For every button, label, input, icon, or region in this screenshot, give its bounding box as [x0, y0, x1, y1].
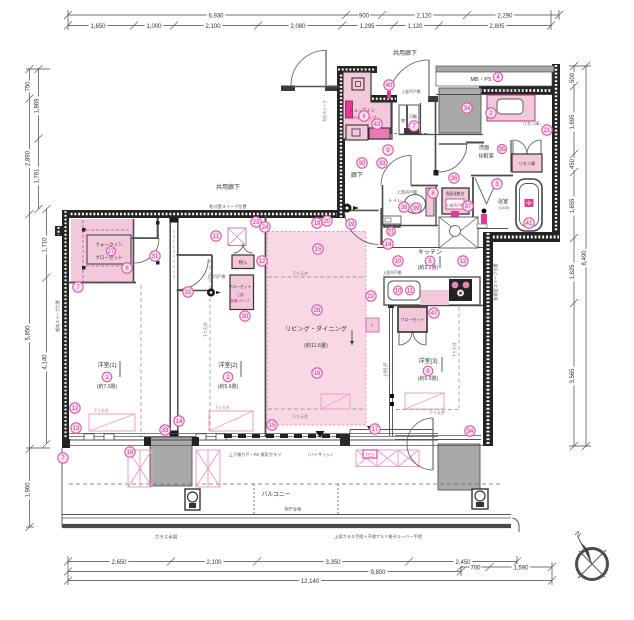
svg-text:12: 12 [72, 406, 79, 412]
svg-text:24: 24 [262, 225, 269, 231]
svg-text:19: 19 [348, 222, 355, 228]
svg-text:8,490: 8,490 [582, 250, 588, 266]
svg-text:41: 41 [526, 221, 533, 227]
svg-text:14: 14 [385, 242, 392, 248]
svg-text:物入: 物入 [239, 259, 248, 266]
svg-text:キッチン: キッチン [418, 249, 442, 256]
svg-text:(約7.0畳): (約7.0畳) [97, 383, 118, 390]
svg-text:上部: 上部 [236, 292, 244, 297]
svg-text:(約5.6畳): (約5.6畳) [218, 383, 239, 390]
svg-text:2,100: 2,100 [206, 560, 222, 566]
svg-text:2,100: 2,100 [205, 24, 221, 30]
svg-text:洋室(2): 洋室(2) [218, 361, 237, 369]
svg-text:可動: 可動 [409, 113, 417, 119]
svg-text:21: 21 [388, 230, 395, 236]
svg-text:31: 31 [152, 254, 159, 260]
svg-text:15: 15 [269, 423, 276, 429]
svg-text:3,350: 3,350 [325, 560, 341, 566]
svg-text:共用廊下: 共用廊下 [393, 49, 417, 57]
svg-text:1,650: 1,650 [90, 24, 106, 30]
svg-text:450: 450 [570, 158, 576, 169]
svg-text:洗面カウンター: 洗面カウンター [496, 87, 524, 93]
svg-text:700: 700 [470, 565, 481, 571]
svg-text:39: 39 [413, 206, 420, 212]
svg-text:27: 27 [108, 249, 115, 255]
svg-text:3,565: 3,565 [570, 368, 576, 384]
svg-text:下り天井: 下り天井 [292, 270, 308, 276]
svg-text:乾式壁スリーブ位置: 乾式壁スリーブ位置 [209, 203, 246, 210]
svg-text:22: 22 [368, 294, 375, 300]
svg-text:1,295: 1,295 [359, 24, 375, 30]
svg-text:クローゼット: クローゼット [229, 284, 252, 289]
svg-text:下り天井: 下り天井 [429, 409, 445, 415]
svg-text:上下勝ち戸・Re 換気ガラリ: 上下勝ち戸・Re 換気ガラリ [229, 451, 282, 458]
svg-text:32: 32 [185, 290, 192, 296]
svg-text:上部吊戸棚: 上部吊戸棚 [383, 270, 402, 275]
svg-text:10: 10 [395, 259, 402, 265]
svg-text:TES: TES [366, 453, 375, 458]
svg-text:1,655: 1,655 [570, 198, 576, 214]
svg-text:11: 11 [213, 234, 220, 240]
svg-text:30: 30 [359, 161, 366, 167]
svg-text:下り天井: 下り天井 [93, 408, 108, 413]
svg-text:900: 900 [359, 13, 370, 19]
svg-text:30: 30 [242, 314, 249, 320]
svg-text:34: 34 [467, 429, 474, 435]
svg-text:4,140: 4,140 [43, 354, 49, 370]
svg-text:リネン庫: リネン庫 [519, 160, 536, 167]
svg-text:5,850: 5,850 [26, 325, 32, 341]
svg-text:2,805: 2,805 [489, 24, 505, 30]
svg-text:6,930: 6,930 [208, 13, 224, 19]
svg-text:750: 750 [26, 81, 32, 92]
svg-text:下り天井: 下り天井 [452, 342, 457, 357]
svg-text:MB・PS: MB・PS [470, 77, 491, 83]
svg-text:バルコニー: バルコニー [262, 491, 291, 498]
svg-text:21: 21 [544, 128, 551, 134]
svg-text:上部吊戸棚: 上部吊戸棚 [446, 203, 464, 208]
svg-text:2,120: 2,120 [416, 13, 432, 19]
svg-text:(1418): (1418) [499, 206, 511, 210]
svg-text:ガラス手摺: ガラス手摺 [155, 534, 178, 541]
svg-text:2,290: 2,290 [497, 13, 513, 19]
svg-text:12: 12 [460, 259, 467, 265]
svg-text:物干金物: 物干金物 [285, 506, 302, 513]
svg-text:ル: ル [371, 323, 375, 327]
svg-text:38: 38 [401, 205, 408, 211]
svg-text:下り天井: 下り天井 [292, 413, 308, 419]
svg-text:上部吊戸棚: 上部吊戸棚 [402, 89, 421, 94]
svg-text:化粧室: 化粧室 [478, 152, 494, 160]
svg-text:下り天井: 下り天井 [214, 405, 229, 410]
svg-text:33: 33 [379, 161, 386, 167]
svg-text:1,869: 1,869 [35, 98, 41, 114]
svg-text:上部吊戸棚: 上部吊戸棚 [207, 274, 226, 279]
svg-text:先行スリーブ: 先行スリーブ [322, 100, 327, 122]
svg-text:洗面化粧台: 洗面化粧台 [446, 191, 465, 196]
svg-text:40: 40 [386, 83, 393, 89]
svg-text:1,960: 1,960 [26, 482, 32, 498]
svg-text:36: 36 [451, 176, 458, 182]
svg-text:下り天井: 下り天井 [203, 322, 208, 337]
svg-text:2,650: 2,650 [111, 560, 127, 566]
svg-text:10: 10 [395, 289, 402, 295]
svg-text:11: 11 [407, 289, 414, 295]
svg-text:2,450: 2,450 [455, 560, 471, 566]
svg-text:20: 20 [324, 219, 331, 225]
svg-text:35: 35 [499, 147, 506, 153]
svg-text:2,890: 2,890 [26, 150, 32, 166]
svg-text:1,000: 1,000 [146, 24, 162, 30]
svg-text:2,080: 2,080 [290, 24, 306, 30]
svg-text:洋室(3): 洋室(3) [418, 357, 437, 365]
svg-text:15: 15 [315, 247, 322, 253]
svg-text:廊下: 廊下 [351, 171, 363, 179]
svg-text:枕棚+パイプ: 枕棚+パイプ [231, 298, 251, 303]
svg-text:1,120: 1,120 [407, 24, 423, 30]
svg-text:47: 47 [431, 311, 438, 317]
svg-text:33: 33 [162, 428, 169, 434]
svg-text:上部吊戸棚: 上部吊戸棚 [397, 189, 417, 195]
svg-text:19: 19 [314, 221, 321, 227]
svg-text:43: 43 [374, 122, 381, 128]
svg-text:16: 16 [314, 371, 321, 377]
svg-text:9,800: 9,800 [370, 570, 386, 576]
svg-text:12,140: 12,140 [301, 579, 320, 585]
svg-text:共用廊下: 共用廊下 [216, 183, 240, 191]
svg-text:物: 物 [401, 117, 405, 123]
svg-text:28: 28 [314, 308, 321, 314]
svg-text:洗面: 洗面 [479, 143, 489, 151]
svg-text:トイレ: トイレ [388, 198, 402, 203]
svg-text:上吊引戸: 上吊引戸 [383, 362, 388, 377]
svg-text:34: 34 [464, 106, 471, 112]
svg-text:各寝室スリーブ位置: 各寝室スリーブ位置 [492, 263, 499, 300]
svg-text:1,590: 1,590 [513, 565, 529, 571]
svg-text:14: 14 [176, 419, 183, 425]
svg-text:23: 23 [253, 220, 260, 226]
svg-text:1,761: 1,761 [35, 168, 41, 184]
svg-text:クローゼット: クローゼット [401, 316, 425, 322]
svg-text:リビング・ダイニング: リビング・ダイニング [285, 325, 347, 333]
svg-text:リネン庫↓: リネン庫↓ [523, 120, 542, 127]
svg-text:500: 500 [570, 72, 576, 83]
svg-text:12: 12 [259, 259, 266, 265]
svg-text:37: 37 [465, 204, 472, 210]
svg-text:1,695: 1,695 [570, 114, 576, 130]
svg-text:上部ガラス手摺＋不燃アルミ格子ルーバー手摺: 上部ガラス手摺＋不燃アルミ格子ルーバー手摺 [334, 533, 422, 540]
svg-text:洋室(1): 洋室(1) [97, 361, 116, 369]
svg-text:18: 18 [127, 450, 134, 456]
svg-text:17: 17 [372, 427, 379, 433]
svg-text:躯体スリーブ位置: 躯体スリーブ位置 [54, 300, 60, 332]
svg-text:1,710: 1,710 [43, 237, 49, 253]
svg-text:(約11.6畳): (約11.6畳) [304, 341, 328, 349]
svg-text:1,625: 1,625 [570, 264, 576, 280]
svg-text:13: 13 [73, 426, 80, 432]
svg-text:浴室: 浴室 [498, 197, 508, 205]
